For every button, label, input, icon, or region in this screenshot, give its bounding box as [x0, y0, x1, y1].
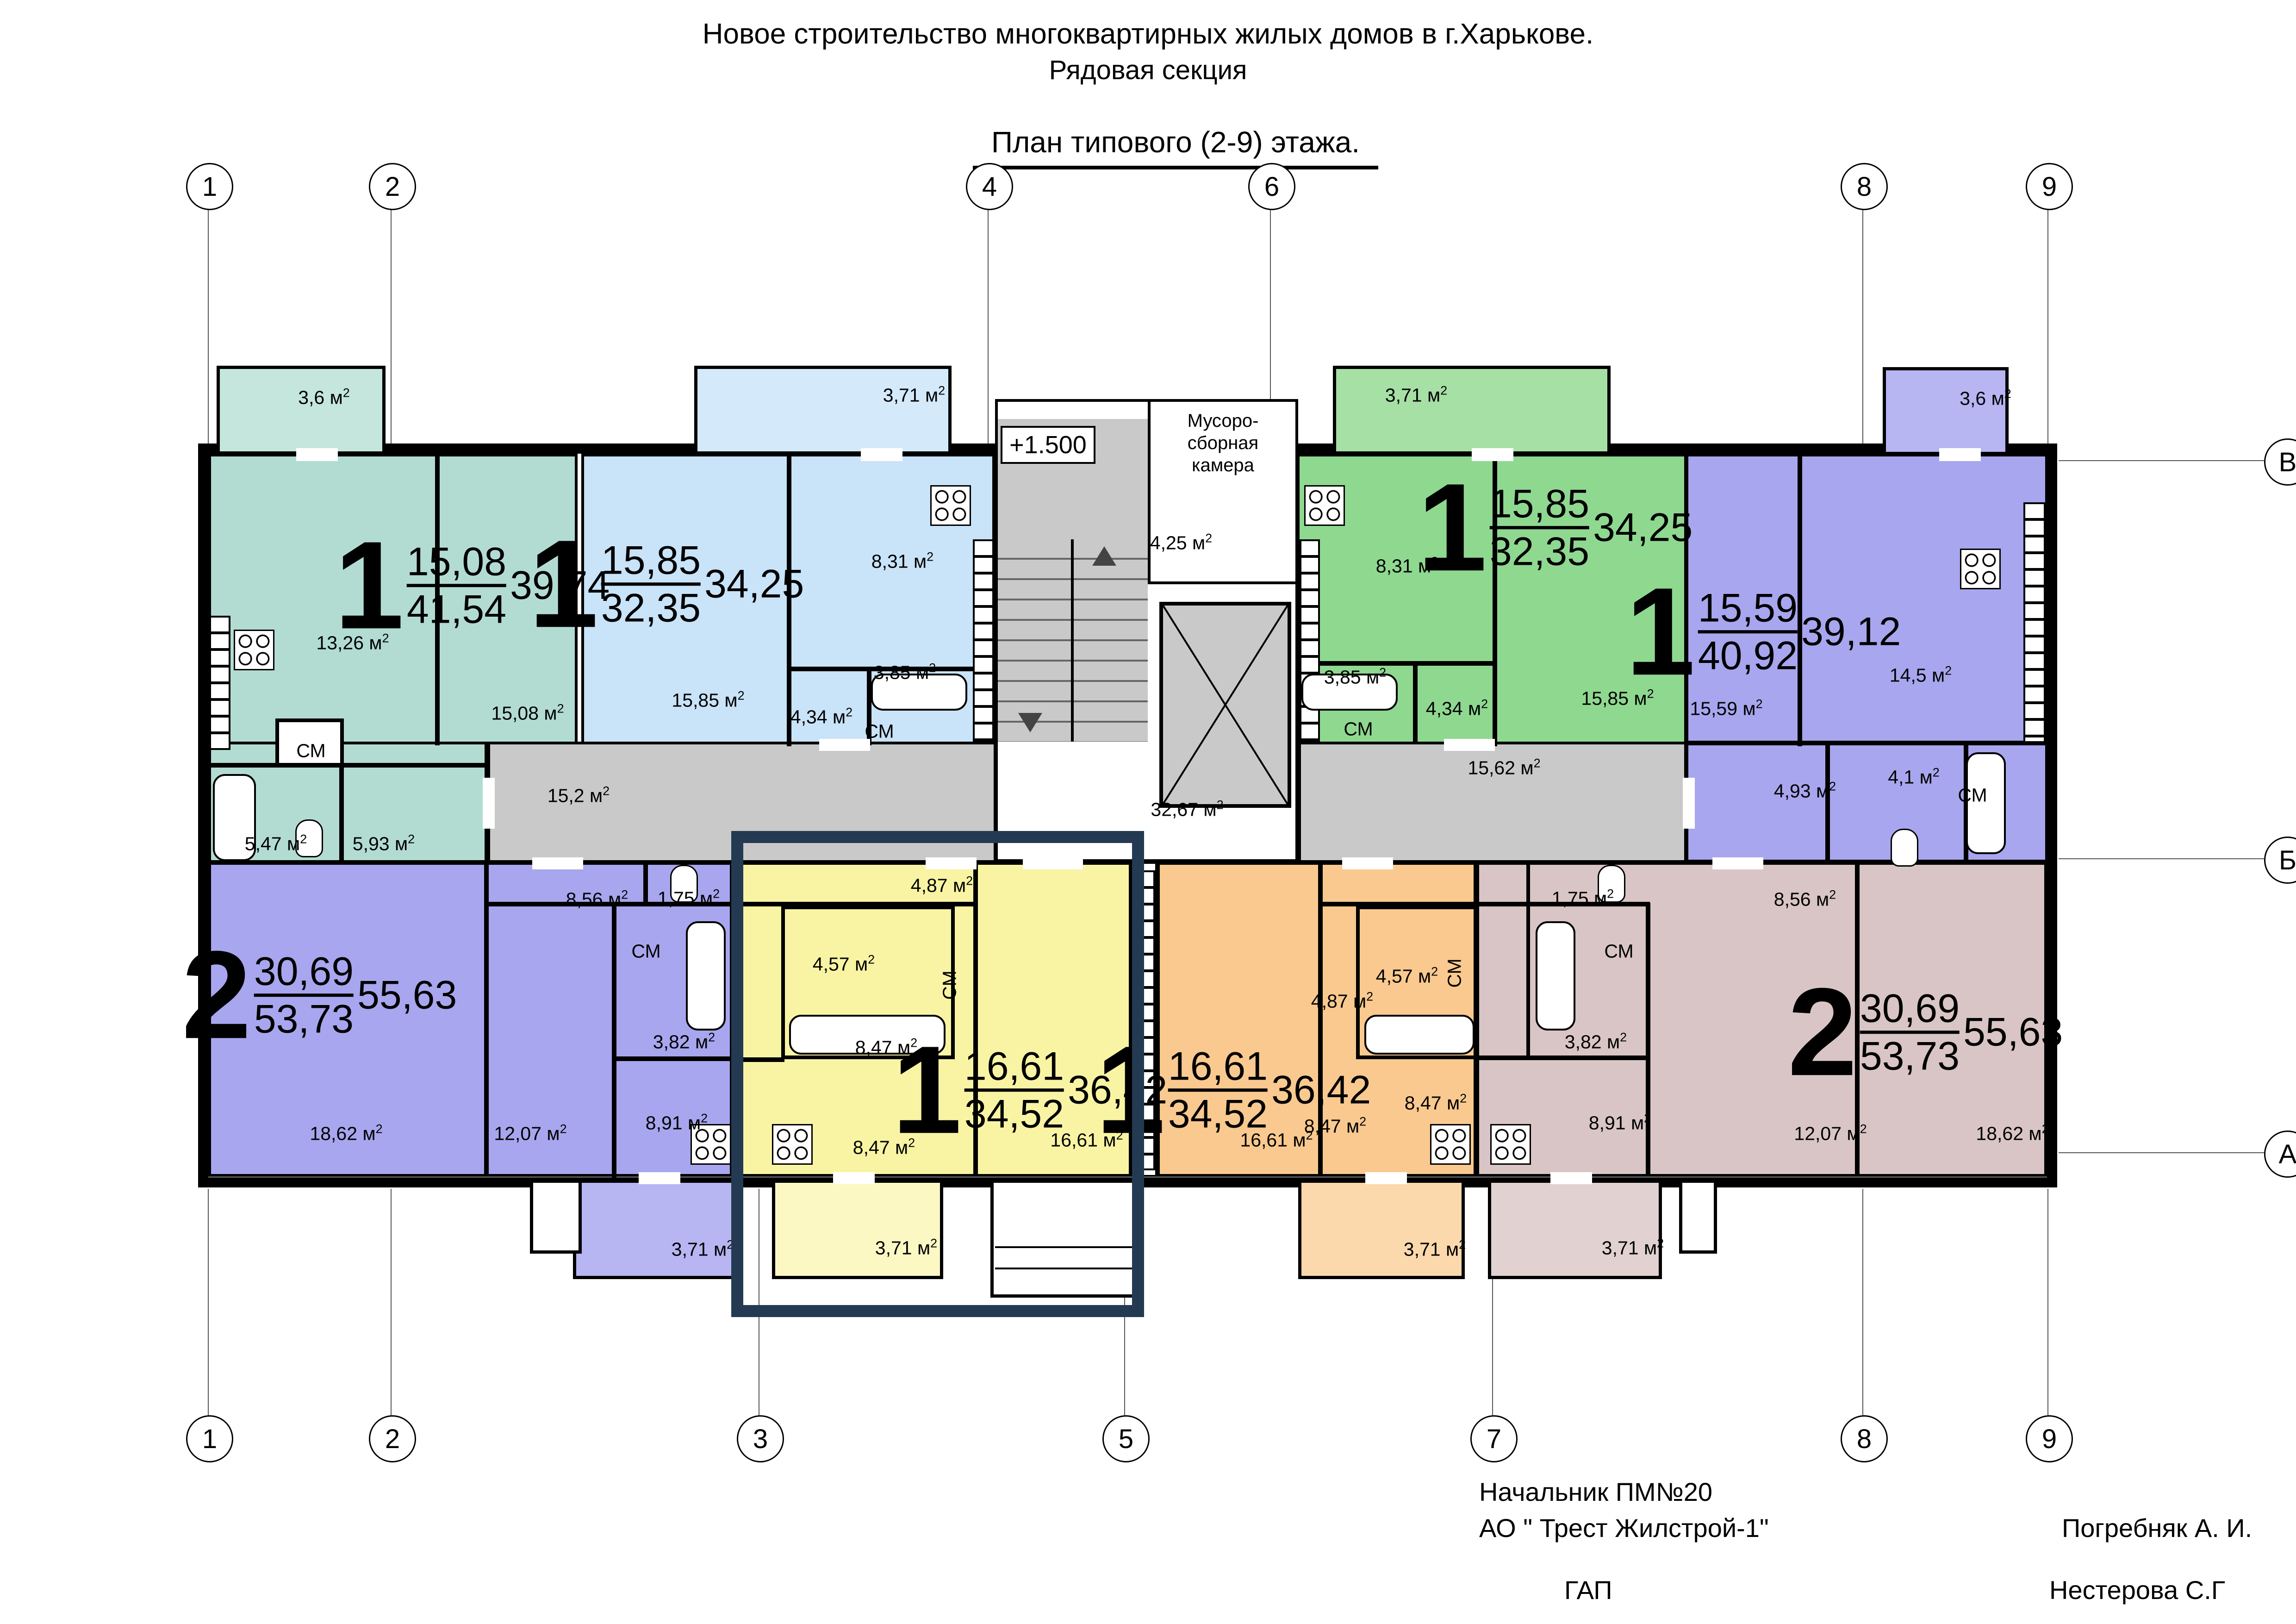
- room-area-label: 3,71 м2: [672, 1238, 734, 1261]
- signature-role-1: Начальник ПМ№20: [1479, 1477, 1712, 1507]
- signature-name-1: Погребняк А. И.: [2062, 1513, 2252, 1543]
- door-gap: [483, 778, 495, 829]
- wall: [1318, 902, 1476, 906]
- room-area-label: 15,59 м2: [1690, 697, 1762, 720]
- room-area-label: 3,85 м2: [1324, 666, 1386, 688]
- wall: [484, 862, 489, 1177]
- stove-icon: [1430, 1124, 1471, 1165]
- axis-line: [391, 207, 392, 443]
- room-area-label: 32,67 м2: [1151, 798, 1223, 821]
- axis-line: [2059, 1152, 2264, 1153]
- stove-icon: [234, 630, 274, 670]
- room-area-label: 8,91 м2: [646, 1112, 708, 1134]
- door-gap: [296, 448, 338, 461]
- wall: [1686, 741, 2048, 745]
- balcony: [1333, 366, 1611, 455]
- drawing-sheet: Новое строительство многоквартирных жилы…: [0, 0, 2296, 1624]
- room-label-cm: СМ: [296, 740, 325, 762]
- room-area-label: 5,93 м2: [353, 832, 415, 855]
- door-gap: [532, 857, 583, 869]
- room-label-cm: СМ: [1958, 785, 1987, 806]
- room-area-label: 3,85 м2: [874, 661, 936, 684]
- axis-bubble-right-В: В: [2264, 438, 2296, 486]
- room-area-label: 8,47 м2: [1405, 1092, 1467, 1114]
- room-label-cm: СМ: [1344, 718, 1373, 740]
- wall: [1526, 862, 1530, 1060]
- room-label-cm: СМ: [865, 721, 894, 743]
- level-mark-text: +1.500: [1009, 431, 1087, 459]
- room-area-label: 4,57 м2: [1376, 965, 1438, 987]
- bathtub-icon: [1364, 1015, 1475, 1055]
- room-area-label: 4,87 м2: [1311, 990, 1373, 1012]
- axis-bubble-top-6: 6: [1248, 163, 1295, 210]
- room-area-label: 4,25 м2: [1150, 531, 1212, 554]
- room-area-label: 8,56 м2: [566, 888, 628, 911]
- door-gap: [861, 448, 902, 461]
- axis-bubble-bottom-5: 5: [1102, 1415, 1150, 1462]
- balcony: [217, 366, 386, 455]
- room-area-label: 1,75 м2: [658, 887, 720, 910]
- balcony: [1883, 367, 2009, 455]
- stair-rail: [1071, 539, 1074, 742]
- axis-bubble-bottom-3: 3: [737, 1415, 784, 1462]
- door-gap: [1342, 857, 1393, 869]
- room-area-label: 8,31 м2: [871, 550, 933, 573]
- door-gap: [819, 739, 870, 751]
- axis-bubble-bottom-2: 2: [369, 1415, 416, 1462]
- room-area-label: 8,56 м2: [1774, 888, 1836, 911]
- door-gap: [1683, 778, 1695, 829]
- axis-bubble-right-Б: Б: [2264, 837, 2296, 884]
- vent-shaft: [973, 539, 994, 742]
- signature-name-2: Нестерова С.Г: [2049, 1575, 2225, 1605]
- entrance-stoop: [1679, 1180, 1717, 1254]
- axis-line: [391, 1189, 392, 1415]
- room-label-cm: СМ: [631, 941, 660, 962]
- room-area-label: 3,6 м2: [1960, 387, 2011, 410]
- room-area-label: 5,47 м2: [245, 832, 307, 855]
- stair-arrow-down: [1018, 713, 1042, 732]
- axis-bubble-top-1: 1: [186, 163, 233, 210]
- apartment-label-purple-right-1room: 115,5940,9239,12: [1626, 579, 1901, 685]
- stove-icon: [1960, 549, 2001, 589]
- plan-title: План типового (2-9) этажа.: [973, 125, 1378, 169]
- door-gap: [1939, 448, 1981, 461]
- axis-bubble-bottom-1: 1: [186, 1415, 233, 1462]
- axis-line: [988, 207, 989, 443]
- axis-line: [2047, 207, 2048, 443]
- apartment-label-blue-1room: 115,8532,3534,25: [529, 531, 804, 637]
- vent-shaft: [209, 616, 230, 750]
- room-area-label: 1,75 м2: [1552, 887, 1614, 910]
- door-gap: [1550, 1172, 1592, 1184]
- room-area-label: 12,07 м2: [1794, 1122, 1867, 1145]
- room-area-label: 3,71 м2: [1385, 384, 1447, 406]
- wall: [1297, 661, 1496, 666]
- axis-line: [208, 207, 209, 443]
- door-gap: [1444, 739, 1495, 751]
- garbage-room-label: Мусоро- сборная камера: [1148, 410, 1298, 476]
- apartment-label-brown-2room: 230,6953,7355,63: [1788, 979, 2063, 1086]
- room-area-label: 4,34 м2: [790, 706, 852, 728]
- level-mark: +1.500: [1001, 426, 1095, 464]
- wall: [643, 862, 648, 904]
- wall: [612, 906, 616, 1179]
- room-area-label: 3,82 м2: [1565, 1031, 1627, 1053]
- axis-line: [2047, 1189, 2048, 1415]
- room-area-label: 4,34 м2: [1426, 697, 1488, 720]
- wall: [1413, 665, 1418, 744]
- toilet-icon: [1891, 829, 1918, 867]
- axis-line: [208, 1189, 209, 1415]
- room-area-label: 15,08 м2: [491, 702, 564, 725]
- apartment-label-purple-left-2room: 230,6953,7355,63: [182, 942, 457, 1049]
- stair-arrow-up: [1092, 546, 1116, 566]
- room-area-label: 12,07 м2: [494, 1122, 566, 1145]
- bathtub-icon: [686, 921, 726, 1031]
- axis-bubble-top-9: 9: [2026, 163, 2073, 210]
- room-area-label: 3,71 м2: [1404, 1238, 1466, 1261]
- stove-icon: [1304, 485, 1345, 526]
- room-area-label: 15,62 м2: [1468, 756, 1540, 779]
- wall: [1825, 744, 1830, 864]
- door-gap: [1712, 857, 1763, 869]
- signature-org: АО " Трест Жилстрой-1": [1479, 1513, 1769, 1543]
- room-area-label: 3,71 м2: [883, 384, 945, 406]
- wall: [1526, 1056, 1649, 1060]
- axis-line: [2059, 460, 2264, 461]
- axis-line: [1862, 1189, 1863, 1415]
- axis-bubble-bottom-7: 7: [1470, 1415, 1518, 1462]
- room-area-label: 18,62 м2: [310, 1122, 382, 1145]
- balcony: [573, 1180, 738, 1279]
- elevator-shaft: [1159, 602, 1291, 808]
- room-area-label: 3,6 м2: [298, 386, 350, 409]
- door-gap: [639, 1172, 680, 1184]
- main-title: Новое строительство многоквартирных жилы…: [0, 18, 2296, 50]
- door-gap: [1365, 1172, 1407, 1184]
- room-area-label: 4,1 м2: [1888, 766, 1940, 788]
- signature-role-2: ГАП: [1564, 1575, 1612, 1605]
- stove-icon: [1490, 1124, 1531, 1165]
- entrance-stoop: [530, 1180, 582, 1254]
- wall: [1476, 1056, 1530, 1060]
- selected-apartment-highlight[interactable]: [731, 831, 1144, 1317]
- room-area-label: 3,82 м2: [653, 1031, 715, 1053]
- room-area-label: 8,91 м2: [1589, 1112, 1651, 1134]
- room-area-label: 18,62 м2: [1976, 1122, 2048, 1145]
- vent-shaft: [1300, 539, 1320, 742]
- room-area-label: 15,85 м2: [672, 689, 744, 712]
- axis-line: [2059, 858, 2264, 859]
- vent-shaft: [2023, 502, 2046, 743]
- room-label-cm: СМ: [1604, 941, 1633, 962]
- stove-icon: [930, 485, 971, 526]
- axis-bubble-bottom-9: 9: [2026, 1415, 2073, 1462]
- subtitle: Рядовая секция: [0, 55, 2296, 86]
- balcony: [1298, 1180, 1465, 1279]
- room-area-label: 4,93 м2: [1774, 780, 1836, 802]
- room-label-cm: СМ: [1444, 958, 1466, 987]
- axis-bubble-bottom-8: 8: [1841, 1415, 1888, 1462]
- wall: [208, 763, 488, 768]
- bathtub-icon: [1536, 921, 1575, 1031]
- balcony: [694, 366, 952, 455]
- balcony: [1488, 1180, 1662, 1279]
- axis-bubble-top-2: 2: [369, 163, 416, 210]
- axis-bubble-top-8: 8: [1841, 163, 1888, 210]
- room-area-label: 15,2 м2: [548, 784, 610, 807]
- axis-bubble-right-А: А: [2264, 1131, 2296, 1178]
- axis-bubble-top-4: 4: [966, 163, 1013, 210]
- axis-line: [1862, 207, 1863, 443]
- wall: [1646, 903, 1650, 1177]
- wall: [612, 1056, 734, 1061]
- room-area-label: 3,71 м2: [1602, 1237, 1664, 1259]
- wall: [339, 766, 344, 863]
- plan-title-wrap: План типового (2-9) этажа.: [0, 125, 2296, 169]
